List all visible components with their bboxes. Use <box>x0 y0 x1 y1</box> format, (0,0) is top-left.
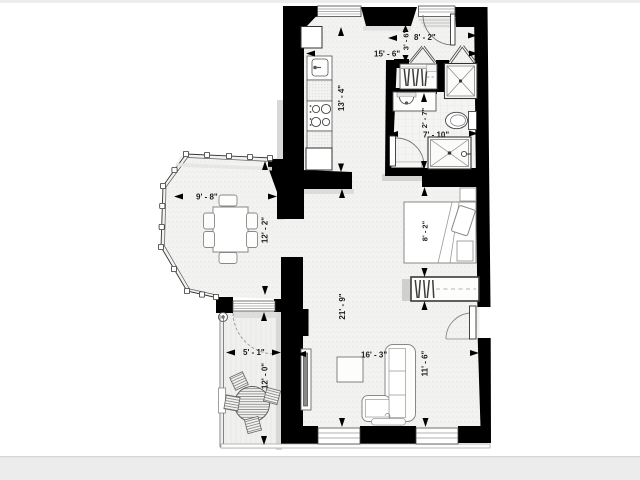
svg-text:12' - 0": 12' - 0" <box>261 363 270 389</box>
svg-text:2' - 7": 2' - 7" <box>420 107 429 128</box>
svg-text:9' - 8": 9' - 8" <box>196 193 218 202</box>
svg-text:7' - 10": 7' - 10" <box>423 131 449 140</box>
svg-text:8' - 2": 8' - 2" <box>421 220 430 241</box>
svg-text:3' - 6": 3' - 6" <box>402 29 411 50</box>
svg-text:8' - 2": 8' - 2" <box>414 33 436 42</box>
svg-text:11' - 6": 11' - 6" <box>421 350 430 376</box>
svg-text:16' - 3": 16' - 3" <box>361 351 387 360</box>
svg-text:12' - 2": 12' - 2" <box>261 217 270 243</box>
svg-text:5' - 1": 5' - 1" <box>243 348 265 357</box>
svg-text:13' - 4": 13' - 4" <box>337 85 346 111</box>
svg-text:21' - 9": 21' - 9" <box>338 293 347 319</box>
svg-text:15' - 6": 15' - 6" <box>374 50 400 59</box>
